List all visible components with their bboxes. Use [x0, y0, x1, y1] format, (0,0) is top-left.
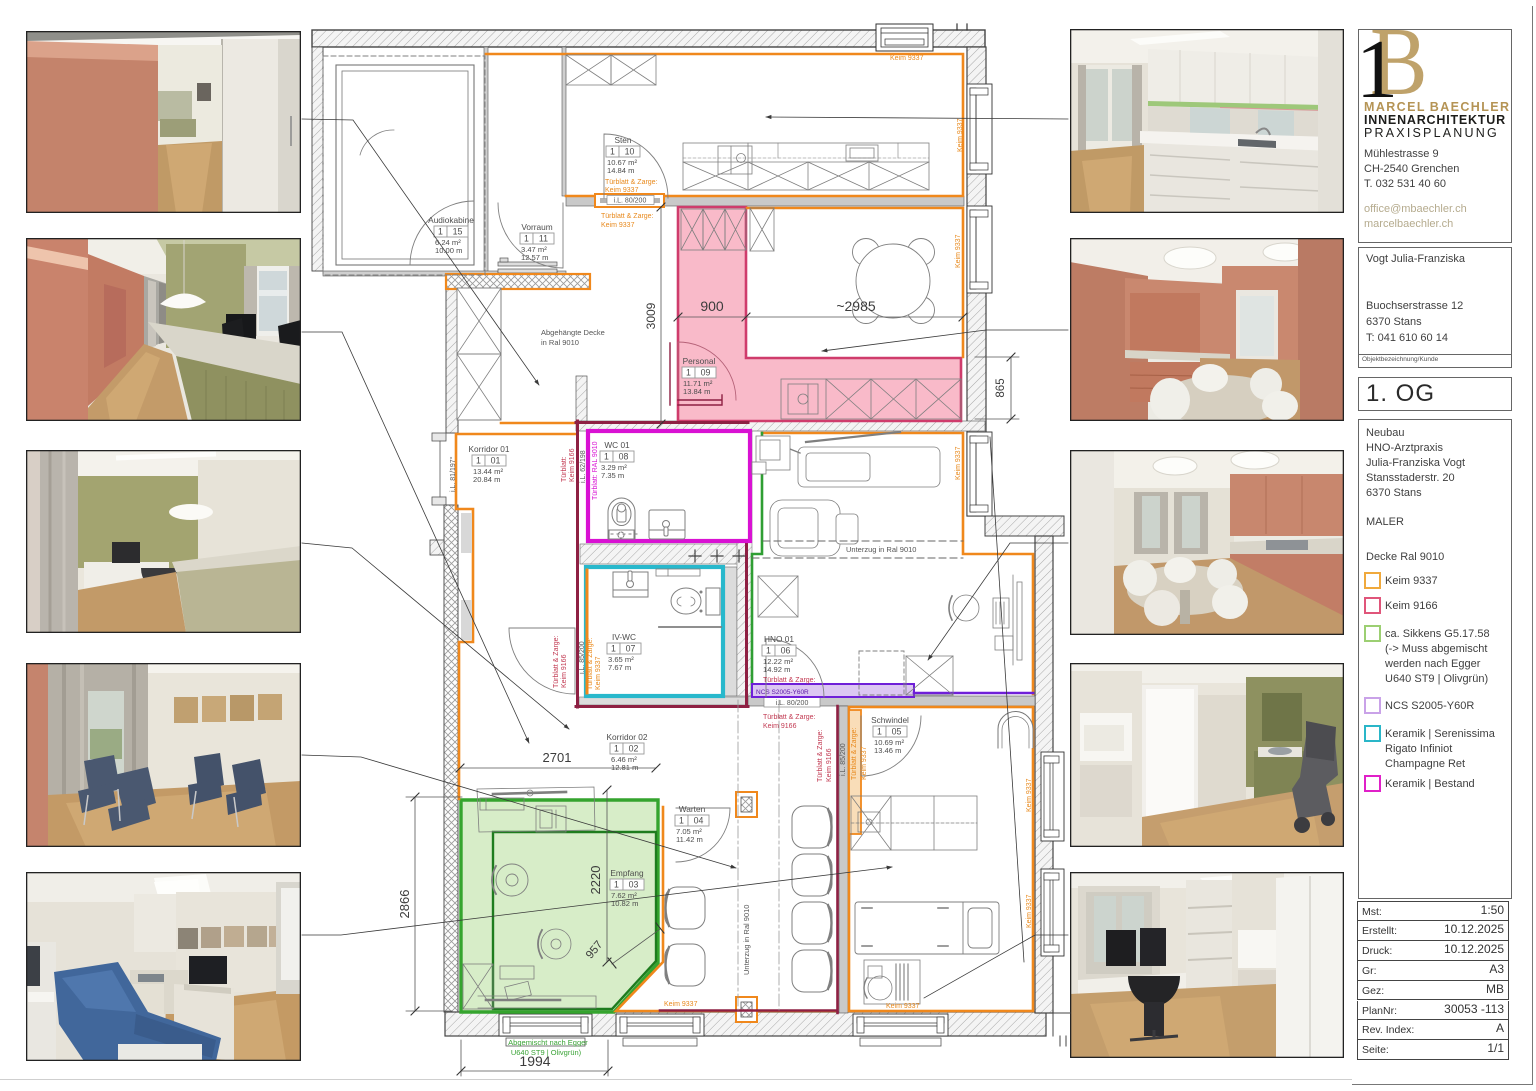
svg-text:7.35 m: 7.35 m [601, 471, 624, 480]
svg-text:Türblatt & Zarge:: Türblatt & Zarge: [763, 677, 816, 684]
svg-text:10: 10 [625, 147, 635, 157]
svg-text:Keim 9337: Keim 9337 [955, 234, 962, 268]
svg-text:i.L. 81/197°: i.L. 81/197° [449, 456, 457, 492]
svg-text:1: 1 [438, 227, 443, 237]
svg-text:Türblatt & Zarge:: Türblatt & Zarge: [587, 637, 594, 690]
svg-text:i.L. 85/200: i.L. 85/200 [579, 641, 586, 674]
svg-text:2701: 2701 [543, 750, 572, 765]
svg-text:Keim 9166: Keim 9166 [826, 748, 833, 782]
svg-text:09: 09 [701, 368, 711, 378]
svg-text:in Ral 9010: in Ral 9010 [541, 338, 579, 347]
svg-text:Keim 9337: Keim 9337 [601, 222, 635, 229]
svg-text:Abgemischt nach Egger: Abgemischt nach Egger [508, 1038, 588, 1047]
svg-text:Audiokabine: Audiokabine [428, 215, 474, 225]
svg-text:1: 1 [610, 147, 615, 157]
svg-text:Unterzug in Ral 9010: Unterzug in Ral 9010 [742, 905, 751, 975]
svg-text:i.L. 80/200: i.L. 80/200 [614, 198, 647, 205]
svg-text:7.67 m: 7.67 m [608, 663, 631, 672]
svg-text:12.57 m: 12.57 m [521, 253, 548, 262]
svg-text:14.84 m: 14.84 m [607, 166, 634, 175]
svg-text:Keim 9166: Keim 9166 [763, 723, 797, 730]
svg-text:1: 1 [614, 744, 619, 754]
svg-text:Keim 9166: Keim 9166 [561, 654, 568, 688]
svg-text:Keim 9337: Keim 9337 [664, 1001, 698, 1008]
svg-text:2866: 2866 [397, 890, 412, 919]
svg-text:11: 11 [539, 234, 548, 244]
svg-text:3009: 3009 [644, 302, 658, 329]
svg-text:i.L. 80/200: i.L. 80/200 [776, 700, 809, 707]
svg-text:IV-WC: IV-WC [612, 632, 636, 642]
svg-text:1: 1 [766, 646, 771, 656]
svg-text:Unterzug in Ral 9010: Unterzug in Ral 9010 [846, 545, 916, 554]
svg-text:10.00 m: 10.00 m [435, 246, 462, 255]
svg-text:Türblatt & Zarge:: Türblatt & Zarge: [817, 729, 824, 782]
svg-text:Türblatt:: Türblatt: [561, 456, 568, 482]
svg-text:07: 07 [626, 644, 636, 654]
svg-text:12.81 m: 12.81 m [611, 763, 638, 772]
svg-text:Keim 9337: Keim 9337 [955, 446, 962, 480]
svg-text:02: 02 [629, 744, 639, 754]
svg-text:Keim 9337: Keim 9337 [861, 746, 868, 780]
svg-text:Türblatt: RAL 9010: Türblatt: RAL 9010 [592, 441, 599, 500]
svg-text:06: 06 [781, 646, 791, 656]
svg-text:i.L. 85/200: i.L. 85/200 [840, 743, 847, 776]
svg-text:Warten: Warten [679, 804, 706, 814]
svg-text:03: 03 [629, 880, 639, 890]
svg-text:1: 1 [604, 452, 609, 462]
svg-text:Türblatt & Zarge:: Türblatt & Zarge: [553, 635, 560, 688]
svg-text:Empfang: Empfang [610, 868, 644, 878]
svg-text:865: 865 [995, 378, 1007, 397]
svg-text:Türblatt & Zarge:: Türblatt & Zarge: [851, 727, 858, 780]
svg-text:1: 1 [686, 368, 691, 378]
svg-text:Türblatt & Zarge:: Türblatt & Zarge: [601, 213, 654, 220]
svg-text:1: 1 [877, 727, 882, 737]
svg-text:14.92 m: 14.92 m [763, 665, 790, 674]
svg-text:04: 04 [694, 816, 704, 826]
svg-text:Keim 9337: Keim 9337 [957, 118, 964, 152]
svg-text:Vorraum: Vorraum [521, 222, 552, 232]
svg-text:U640 ST9 | Olivgrün): U640 ST9 | Olivgrün) [511, 1048, 582, 1057]
svg-text:Keim 9337: Keim 9337 [595, 656, 602, 690]
svg-text:20.84 m: 20.84 m [473, 475, 500, 484]
svg-text:WC 01: WC 01 [604, 440, 630, 450]
svg-text:Schwindel: Schwindel [871, 715, 909, 725]
svg-text:1: 1 [524, 234, 529, 244]
svg-text:Türblatt & Zarge:: Türblatt & Zarge: [605, 179, 658, 186]
svg-text:Korridor 01: Korridor 01 [468, 444, 509, 454]
svg-text:900: 900 [700, 298, 724, 314]
svg-text:Keim 9337: Keim 9337 [605, 187, 639, 194]
svg-text:2220: 2220 [588, 866, 603, 895]
svg-text:1: 1 [476, 456, 481, 466]
svg-text:15: 15 [453, 227, 463, 237]
svg-text:Keim 9337: Keim 9337 [1026, 778, 1033, 812]
svg-text:01: 01 [491, 456, 501, 466]
svg-text:1: 1 [679, 816, 684, 826]
svg-text:Abgehängte Decke: Abgehängte Decke [541, 328, 605, 337]
svg-text:11.42 m: 11.42 m [676, 835, 703, 844]
svg-text:05: 05 [892, 727, 902, 737]
svg-text:Keim 9337: Keim 9337 [1026, 894, 1033, 928]
svg-text:Korridor 02: Korridor 02 [606, 732, 647, 742]
svg-text:~2985: ~2985 [836, 298, 876, 314]
svg-text:Personal: Personal [683, 356, 716, 366]
svg-text:08: 08 [619, 452, 629, 462]
svg-text:13.46 m: 13.46 m [874, 746, 901, 755]
svg-text:Keim 9166: Keim 9166 [569, 448, 576, 482]
svg-text:HNO 01: HNO 01 [764, 634, 794, 644]
svg-text:Keim 9337: Keim 9337 [886, 1003, 920, 1010]
svg-text:1: 1 [611, 644, 616, 654]
svg-text:13.84 m: 13.84 m [683, 387, 710, 396]
svg-text:i.L. 62/198: i.L. 62/198 [580, 450, 587, 483]
svg-text:Sten: Sten [614, 135, 631, 145]
svg-text:Keim 9337: Keim 9337 [890, 55, 924, 62]
svg-text:NCS S2005-Y60R: NCS S2005-Y60R [756, 689, 809, 696]
svg-text:Türblatt & Zarge:: Türblatt & Zarge: [763, 714, 816, 721]
svg-text:1: 1 [614, 880, 619, 890]
